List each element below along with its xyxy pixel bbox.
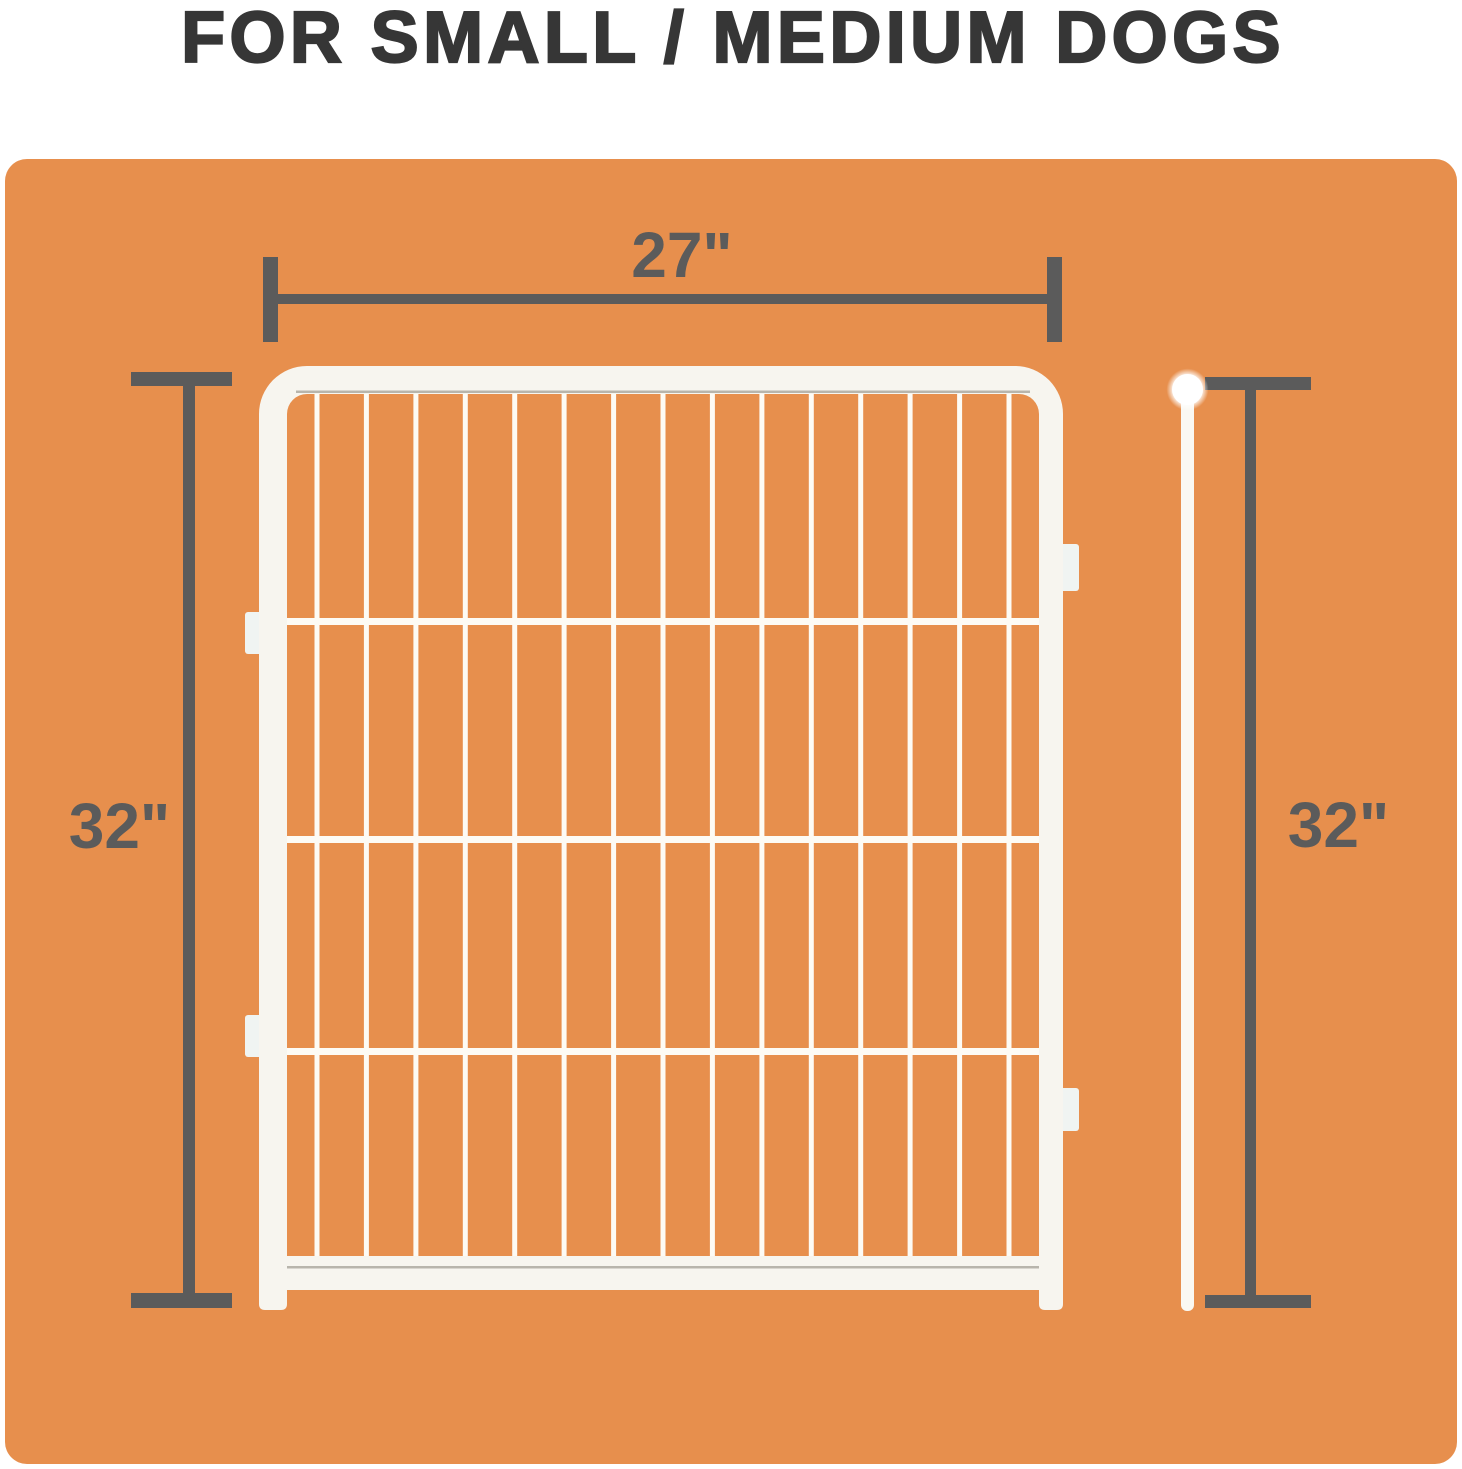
svg-text:FOR SMALL / MEDIUM DOGS: FOR SMALL / MEDIUM DOGS [181, 0, 1285, 78]
svg-text:27": 27" [631, 219, 733, 291]
svg-text:32": 32" [1288, 789, 1390, 861]
svg-text:32": 32" [69, 790, 171, 862]
